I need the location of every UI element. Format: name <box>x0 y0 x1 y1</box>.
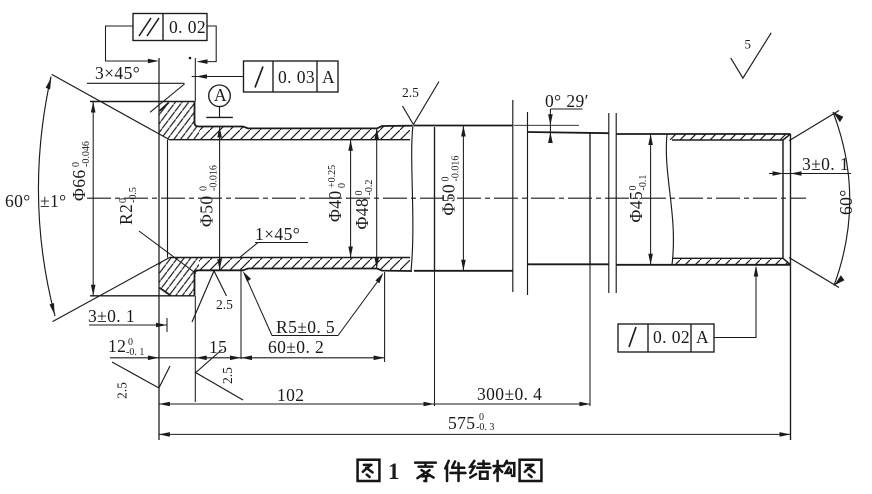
svg-text:Φ40: Φ40 <box>325 191 345 223</box>
svg-text:-0.5: -0.5 <box>128 187 139 203</box>
svg-text:5: 5 <box>745 37 752 52</box>
svg-text:12: 12 <box>108 336 126 356</box>
svg-text:Φ48: Φ48 <box>352 198 372 230</box>
svg-text:A: A <box>214 85 227 105</box>
svg-text:0. 03: 0. 03 <box>278 67 315 87</box>
svg-text:Φ66: Φ66 <box>69 170 89 202</box>
svg-text:0: 0 <box>337 183 348 188</box>
svg-text:0° 29′: 0° 29′ <box>545 91 589 111</box>
svg-text:102: 102 <box>277 385 304 405</box>
svg-text:2.5: 2.5 <box>115 382 130 399</box>
svg-text:0. 02: 0. 02 <box>169 17 206 37</box>
svg-text:2.5: 2.5 <box>402 85 419 100</box>
svg-text:1×45°: 1×45° <box>255 224 300 244</box>
svg-text:60±0. 2: 60±0. 2 <box>268 337 324 357</box>
svg-text:-0. 1: -0. 1 <box>126 347 144 358</box>
svg-text:-0.1: -0.1 <box>638 175 649 191</box>
svg-text:-0.016: -0.016 <box>209 165 220 191</box>
svg-text:0. 02: 0. 02 <box>653 327 690 347</box>
svg-text:Φ50: Φ50 <box>439 184 459 216</box>
svg-text:575: 575 <box>448 413 475 433</box>
svg-text:R2: R2 <box>116 204 136 225</box>
svg-text:3±0. 1: 3±0. 1 <box>88 306 135 326</box>
svg-text:Φ45: Φ45 <box>626 191 646 223</box>
svg-text:3×45°: 3×45° <box>95 63 140 83</box>
svg-text:Φ50: Φ50 <box>197 196 217 228</box>
svg-text:-0. 3: -0. 3 <box>476 422 494 433</box>
svg-text:R5±0. 5: R5±0. 5 <box>276 317 335 337</box>
svg-text:2.5: 2.5 <box>216 297 233 312</box>
svg-text:±1°: ±1° <box>40 191 67 211</box>
svg-text:-0.016: -0.016 <box>451 156 462 182</box>
svg-text:60°: 60° <box>836 189 856 215</box>
svg-text:2.5: 2.5 <box>220 367 235 384</box>
svg-text:3±0. 1: 3±0. 1 <box>802 154 849 174</box>
svg-text:A: A <box>322 67 335 87</box>
svg-text:60°: 60° <box>5 191 31 211</box>
svg-text:-0.046: -0.046 <box>81 141 92 167</box>
svg-text:1: 1 <box>388 459 400 484</box>
svg-text:A: A <box>696 327 709 347</box>
svg-text:15: 15 <box>209 337 227 357</box>
svg-text:-0.2: -0.2 <box>364 180 375 196</box>
svg-text:300±0. 4: 300±0. 4 <box>477 384 542 404</box>
